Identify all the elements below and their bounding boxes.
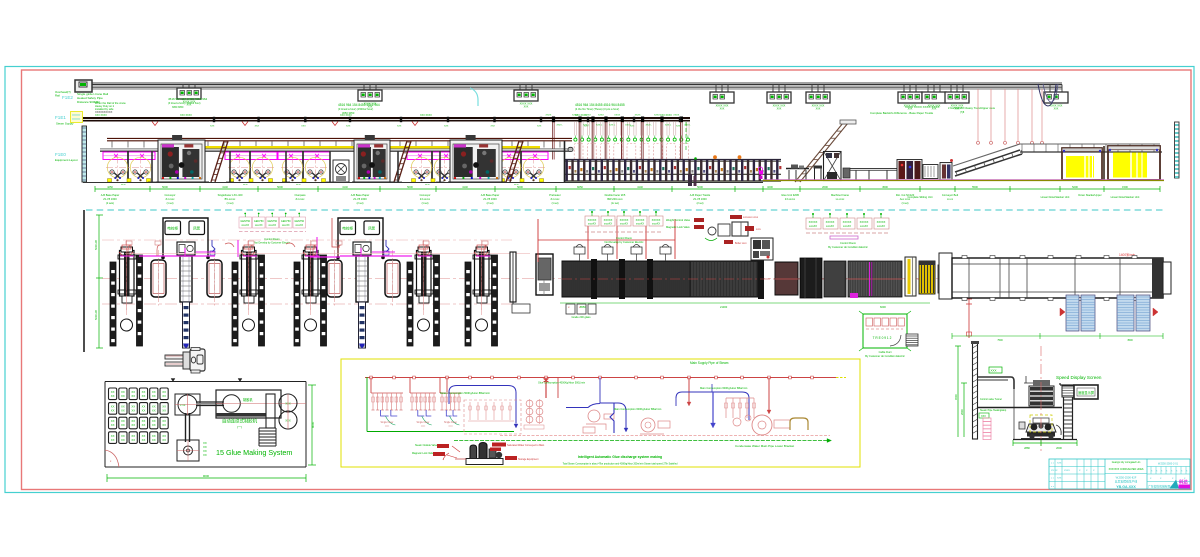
svg-text:XXX L: XXX L [684,125,691,127]
svg-text:XX: XX [152,438,156,442]
svg-text:x xx: x xx [180,403,186,407]
svg-text:Total Steam Consumption is abo: Total Steam Consumption is about 4Ton pr… [563,463,679,466]
svg-text:Down StackerUpper: Down StackerUpper [1078,193,1101,197]
svg-text:XXXX: XXXX [572,115,578,117]
svg-text:A-B Paper Trestle: A-B Paper Trestle [690,193,711,197]
svg-text:XX: XX [152,423,156,427]
svg-text:XXX: XXX [816,108,821,111]
svg-text:Steam Pipe Heating&top: Steam Pipe Heating&top [980,409,1007,412]
svg-text:XX: XX [131,394,135,398]
svg-text:XX: XX [142,423,146,427]
svg-text:电控柜: 电控柜 [167,226,178,231]
svg-text:XXX L: XXX L [596,125,603,127]
svg-text:x x: x x [1051,478,1055,480]
svg-text:3500: 3500 [1127,339,1133,342]
svg-text:2880: 2880 [1024,446,1030,450]
svg-text:9000: 9000 [203,474,210,478]
svg-text:8000: 8000 [311,421,315,428]
svg-text:XXXXX: XXXXX [843,220,852,224]
svg-text:(1 set): (1 set) [167,202,174,205]
svg-text:x: x [110,460,112,463]
svg-text:X: X [1181,471,1183,473]
svg-text:xxxxXX: xxxxXX [877,225,885,228]
svg-text:YB.GA.XXX: YB.GA.XXX [1116,485,1136,489]
svg-text:Double Facer 2F5: Double Facer 2F5 [605,193,626,197]
svg-text:XX: XX [111,438,115,442]
svg-text:(1 set): (1 set) [422,202,429,205]
svg-text:xxxxXX: xxxxXX [604,223,612,226]
svg-text:SingleFacer LXC-320: SingleFacer LXC-320 [218,193,243,197]
svg-text:ZJ-V5 1600: ZJ-V5 1600 [103,197,117,201]
svg-text:Saturated Water Conveyed to Ma: Saturated Water Conveyed to Main [507,444,545,447]
svg-text:5200: 5200 [1072,185,1078,189]
svg-text:Storage Equipment: Storage Equipment [518,458,539,461]
svg-text:XXX XXXX: XXX XXXX [420,114,432,117]
svg-text:XXX XXXX: XXX XXXX [95,114,107,117]
svg-text:xxxxXX: xxxxXX [843,225,851,228]
svg-text:Preheater: Preheater [549,193,561,197]
svg-text:xxxxXX: xxxxXX [636,223,644,226]
svg-text:X: X [1176,471,1178,473]
svg-text:4140: 4140 [637,185,643,189]
svg-text:xx xx: xx xx [243,184,248,186]
svg-text:XXXXX: XXXXX [652,218,661,222]
svg-text:4140: 4140 [222,185,228,189]
svg-text:xxxxXX: xxxxXX [255,225,263,227]
svg-text:XXXXX: XXXXX [826,220,835,224]
svg-text:(4 the No Time) (Thous) (3 pc: (4 the No Time) (Thous) (3 pcs a hour) [575,107,619,111]
svg-text:15 Glue Making System: 15 Glue Making System [216,448,292,457]
svg-text:GEN750: GEN750 [281,220,291,223]
svg-text:Linear DownStacker Unit: Linear DownStacker Unit [1111,195,1140,199]
svg-text:6000: 6000 [880,305,886,309]
svg-text:XXXX: XXXX [546,115,552,117]
svg-text:XXXX: XXXX [1064,470,1070,472]
svg-text:xxxxXX: xxxxXX [282,225,290,227]
svg-text:XX: XX [111,423,115,427]
svg-text:Weight Control Valve: Weight Control Valve [666,218,691,222]
svg-text:Single Facer: Single Facer [444,421,457,424]
svg-text:XX: XX [131,423,135,427]
svg-text:Complete Backinfo Difference -: Complete Backinfo Difference - Base Pape… [870,111,934,115]
svg-text:XXXX: XXXX [635,115,641,117]
svg-text:Guangxi city corrugated Lim: Guangxi city corrugated Lim [1112,461,1141,464]
svg-text:xxxx: xxxx [385,426,390,428]
svg-text:5000: 5000 [697,185,703,189]
svg-text:Glue Consumption 4000Kg/Hour 5: Glue Consumption 4000Kg/Hour 500L/min [538,382,586,385]
svg-text:Conveyor Belt: Conveyor Belt [942,193,959,197]
svg-text:LYA2568988 Classy TrendUpper v: LYA2568988 Classy TrendUpper view [948,106,996,110]
svg-text:XXX L: XXX L [646,125,653,127]
svg-text:XX XX: XX XX [1051,470,1058,472]
svg-text:GEN750: GEN750 [254,220,264,223]
svg-text:xxxx: xxxx [448,426,453,428]
svg-text:2600: 2600 [1056,446,1062,450]
svg-text:制胶机: 制胶机 [243,397,253,402]
svg-text:(3 timed a hour) (1500x2 hour): (3 timed a hour) (1500x2 hour) [168,102,201,105]
svg-text:ZJ-xxxx: ZJ-xxxx [296,197,306,201]
svg-text:X: X [1186,471,1188,473]
svg-text:XX: XX [131,438,135,442]
svg-text:4500: 4500 [882,185,888,189]
svg-text:XX: XX [142,394,146,398]
svg-text:XXX: XXX [255,126,260,128]
svg-text:xxxxXX: xxxxXX [588,223,596,226]
svg-text:速度显示屏: 速度显示屏 [1078,390,1095,395]
svg-text:XXX: XXX [991,369,997,373]
svg-text:4516 964 154 8455 4516 964: 4516 964 154 8455 4516 964 [338,103,380,107]
svg-text:(一): (一) [237,425,242,429]
svg-text:XXXX XXXX XXXX XXXX: XXXX XXXX XXXX XXXX [905,105,940,109]
svg-text:7500: 7500 [997,339,1003,342]
svg-text:GEN750: GEN750 [294,220,304,223]
svg-text:XXXXXXX CORRUGATED LINES: XXXXXXX CORRUGATED LINES [1109,468,1144,471]
svg-text:5000 AB: 5000 AB [94,310,98,320]
svg-text:XXXXX: XXXXX [809,220,818,224]
svg-text:1500: 1500 [1122,185,1128,189]
svg-text:8550: 8550 [580,305,586,309]
svg-text:Conveyor: Conveyor [419,193,430,197]
svg-text:Single Facer: Single Facer [381,421,394,424]
svg-text:X: X [1166,471,1168,473]
svg-text:(1x set): (1x set) [611,202,619,205]
svg-text:科达: 科达 [1179,479,1188,486]
svg-text:Speed Display Screen: Speed Display Screen [1056,375,1102,380]
svg-text:(2 sets): (2 sets) [106,202,114,205]
svg-text:Control Room: Control Room [616,236,632,240]
svg-text:XXXX: XXXX [673,115,679,117]
svg-text:xxxxXX: xxxxXX [620,223,628,226]
svg-text:XXXX: XXXX [654,115,660,117]
svg-text:(7)8: (7)8 [960,111,965,114]
svg-text:Machine Frame: Machine Frame [831,193,850,197]
svg-text:XX: XX [142,438,146,442]
svg-text:XXX: XXX [444,126,449,128]
svg-text:XX: XX [121,423,125,427]
svg-text:5000: 5000 [407,185,413,189]
svg-text:xxxx: xxxx [421,426,426,428]
svg-text:X: X [1151,471,1153,473]
svg-text:XX: XX [152,409,156,413]
svg-text:5000: 5000 [277,185,283,189]
svg-text:xx xx: xx xx [296,184,301,186]
svg-text:4140: 4140 [342,185,348,189]
svg-text:XXX L: XXX L [557,125,564,127]
svg-text:Complete Slitting Unit: Complete Slitting Unit [908,195,933,199]
svg-text:ZJ-xxxxx: ZJ-xxxxx [420,197,431,201]
svg-text:Steam Outside Valve: Steam Outside Valve [415,444,438,447]
svg-text:By Customer do Condition Elect: By Customer do Condition Electric [865,354,905,358]
svg-text:Grade 200 glass: Grade 200 glass [571,315,591,319]
svg-text:ZJ-V5 1600: ZJ-V5 1600 [483,197,497,201]
svg-text:Intelligent Automatic Glue dis: Intelligent Automatic Glue discharge sys… [578,455,662,459]
svg-text:X: X [1156,471,1158,473]
svg-text:5000 AB: 5000 AB [94,240,98,250]
svg-text:F1E0: F1E0 [55,152,66,157]
svg-text:XX: XX [121,438,125,442]
svg-text:XXX XXXX: XXX XXXX [340,114,352,117]
svg-text:X: X [1093,470,1095,472]
svg-text:GEN750: GEN750 [240,220,250,223]
svg-text:xxxxXX: xxxxXX [652,223,660,226]
svg-text:A-B Base Paper: A-B Base Paper [101,193,120,197]
svg-text:XX: XX [131,409,135,413]
svg-text:自动连续式制胶机: 自动连续式制胶机 [222,418,258,425]
svg-text:XXX: XXX [210,126,215,128]
svg-text:X: X [1161,471,1163,473]
svg-text:Main Supply Pipe of Steam: Main Supply Pipe of Steam [690,361,729,365]
svg-text:XX: XX [203,453,207,457]
svg-text:XXXX: XXXX [72,117,80,121]
svg-text:xxxxXX: xxxxXX [268,225,276,227]
svg-text:8250: 8250 [577,185,583,189]
svg-text:Magnetic Lock Valve: Magnetic Lock Valve [666,225,690,229]
svg-text:XXX: XXX [777,108,782,111]
svg-text:XXXX: XXXX [585,115,591,117]
svg-text:(1 set): (1 set) [552,202,559,205]
svg-text:XX: XX [152,394,156,398]
svg-text:21300: 21300 [720,305,728,309]
svg-text:T R E 0 9 1 2: T R E 0 9 1 2 [873,336,892,340]
svg-text:(3 timed a hour) (1500x2 hour): (3 timed a hour) (1500x2 hour) [338,107,373,111]
svg-text:Not Develop by Customer Electr: Not Develop by Customer Electric [254,242,291,245]
svg-text:XX: XX [121,409,125,413]
svg-text:XXX L: XXX L [583,125,590,127]
svg-text:XX: XX [111,409,115,413]
svg-text:5500: 5500 [972,185,978,189]
svg-text:XXX XXXX: XXX XXXX [180,114,192,117]
svg-text:Conveyor: Conveyor [164,193,175,197]
svg-text:XXXXX: XXXXX [588,218,597,222]
svg-text:XXXXX: XXXXX [604,218,613,222]
svg-text:xxxxXX: xxxxXX [826,225,834,228]
svg-text:ZJ-V5 1600: ZJ-V5 1600 [353,197,367,201]
svg-text:(2 set): (2 set) [697,202,704,205]
svg-text:XXXXX: XXXXX [620,218,629,222]
svg-text:5000: 5000 [517,185,523,189]
svg-text:xxxxXX: xxxxXX [295,225,303,227]
svg-text:F1E1: F1E1 [55,115,66,120]
svg-text:Equipment Layout: Equipment Layout [55,158,78,162]
svg-text:xx-xx: xx-xx [947,198,954,201]
svg-text:Condensate Water Main Pipe Low: Condensate Water Main Pipe Lower Bracket [735,444,794,448]
svg-text:F1E2: F1E2 [62,95,73,100]
svg-text:ZJ-xxxx: ZJ-xxxx [166,197,176,201]
svg-text:风泵: 风泵 [193,226,201,231]
svg-text:XX: XX [111,394,115,398]
svg-text:XXX: XXX [1057,478,1062,480]
svg-text:XXX: XXX [491,126,496,128]
svg-text:BV-xxxxx: BV-xxxxx [225,197,236,201]
svg-text:ZJ-V5 1600: ZJ-V5 1600 [693,197,707,201]
svg-text:电控柜: 电控柜 [342,226,353,231]
svg-text:Boiler xxxx: Boiler xxxx [735,242,747,245]
svg-text:XXX: XXX [346,126,351,128]
svg-text:xx xx: xx xx [425,184,430,186]
svg-text:4250: 4250 [107,185,113,189]
svg-text:XXX: XXX [720,108,725,111]
svg-text:By Customer do Condition Elect: By Customer do Condition Electric [828,245,868,249]
svg-text:XXX L: XXX L [625,125,632,127]
svg-text:xxxxxxxx xxxx: xxxxxxxx xxxx [743,216,759,219]
svg-text:XXXX: XXXX [614,115,620,117]
svg-text:XXX: XXX [301,126,306,128]
svg-text:2600: 2600 [960,409,964,415]
svg-text:Steam Consumption 500Kg/Hour 8: Steam Consumption 500Kg/Hour 8Bar/mini [440,391,490,395]
svg-text:3200: 3200 [767,185,773,189]
svg-text:2600: 2600 [822,185,828,189]
svg-text:(1 set): (1 set) [227,202,234,205]
svg-text:XXXXX: XXXXX [877,220,886,224]
svg-text:3050 3050: 3050 3050 [172,106,184,109]
svg-text:X: X [1079,470,1081,472]
svg-text:XX: XX [162,394,166,398]
svg-text:XXX: XXX [537,126,542,128]
svg-text:4516 964 154 8455 4516 964: 4516 964 154 8455 4516 964 [168,97,208,101]
svg-text:Cable Duct: Cable Duct [879,350,892,354]
svg-text:ZJ-xxxx: ZJ-xxxx [551,197,561,201]
svg-text:X: X [1150,478,1152,480]
svg-text:Glue Unit 320B: Glue Unit 320B [781,193,799,197]
svg-text:X: X [1160,478,1162,480]
svg-text:XXX: XXX [981,415,986,418]
svg-text:X: X [1172,478,1174,480]
svg-text:XX: XX [121,394,125,398]
svg-text:XXXXX: XXXXX [636,218,645,222]
svg-text:(2 set): (2 set) [357,202,364,205]
svg-text:XX: XX [162,423,166,427]
svg-text:4140: 4140 [462,185,468,189]
svg-text:XXXXX: XXXXX [860,220,869,224]
svg-text:xxxxXX: xxxxXX [241,225,249,227]
svg-text:XXX: XXX [524,106,529,109]
svg-text:风泵: 风泵 [368,226,376,231]
svg-text:(2 set): (2 set) [487,202,494,205]
svg-text:4500: 4500 [954,394,958,400]
svg-text:Magnetic Lock Valve: Magnetic Lock Valve [412,452,435,455]
svg-text:XXXX: XXXX [598,115,604,117]
svg-text:Single Facer: Single Facer [417,421,430,424]
svg-text:BW-200-xxxx: BW-200-xxxx [607,197,623,201]
svg-text:Rail: Rail [55,94,60,98]
svg-text:Control valve Tunnel: Control valve Tunnel [980,398,1002,401]
svg-text:X: X [1171,471,1173,473]
svg-text:XX: XX [142,409,146,413]
svg-text:Main Consumption 600Kg/Hour 6B: Main Consumption 600Kg/Hour 6Bar/min [614,407,662,411]
svg-text:xx-xxxx: xx-xxxx [836,198,845,201]
svg-text:4516 964 154 8455 4516 964 8: 4516 964 154 8455 4516 964 8455 [575,103,625,107]
svg-text:Overpass: Overpass [294,193,306,197]
svg-text:XXX: XXX [397,126,402,128]
svg-text:五层瓦楞纸生产线: 五层瓦楞纸生产线 [1115,480,1138,484]
svg-text:Not Develop by Customer Electr: Not Develop by Customer Electric [605,240,645,244]
svg-text:Control Room: Control Room [264,238,279,241]
svg-text:XXX: XXX [1054,108,1059,111]
svg-text:Main Consumption 600Kg/Hour 6B: Main Consumption 600Kg/Hour 6Bar/min [700,386,748,390]
svg-text:xx xx: xx xx [121,184,126,186]
svg-text:XX: XX [162,409,166,413]
svg-text:A-B Base Paper: A-B Base Paper [481,193,500,197]
svg-text:A-B Base Paper: A-B Base Paper [351,193,370,197]
svg-text:ZJ-xxxxx: ZJ-xxxxx [785,197,796,201]
svg-text:xxxx: xxxx [756,228,762,231]
svg-text:Linear DownStacker Unit: Linear DownStacker Unit [1041,195,1070,199]
svg-text:XXX XXXX: XXX XXXX [660,114,672,117]
svg-text:xxxxXX: xxxxXX [860,225,868,228]
svg-text:X: X [1086,470,1088,472]
svg-text:GEN750: GEN750 [267,220,277,223]
svg-text:(1 set): (1 set) [902,202,909,205]
svg-text:xxxxXX: xxxxXX [809,225,817,228]
svg-text:WJ250-2500-2-01: WJ250-2500-2-01 [1158,463,1179,466]
svg-text:XX: XX [162,438,166,442]
svg-text:XXX: XXX [1057,463,1062,465]
svg-text:Control Room: Control Room [840,241,856,245]
svg-text:XXX L: XXX L [609,125,616,127]
svg-text:5000: 5000 [162,185,168,189]
svg-text:x x: x x [1051,463,1055,465]
svg-text:XXX L: XXX L [665,125,672,127]
svg-text:x x: x x [1051,486,1055,488]
